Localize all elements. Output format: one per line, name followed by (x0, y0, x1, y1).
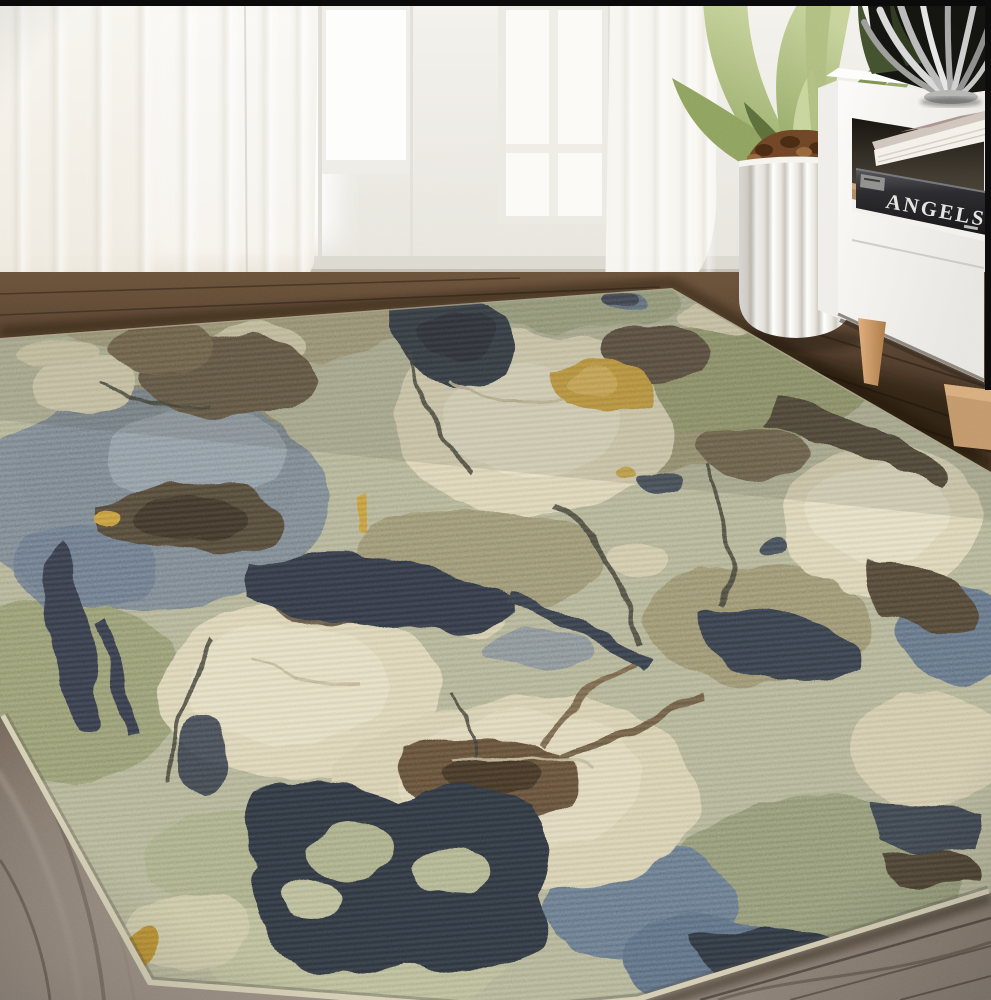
living-room-photo: ANGELS (0, 0, 991, 1000)
vignette (0, 0, 991, 1000)
